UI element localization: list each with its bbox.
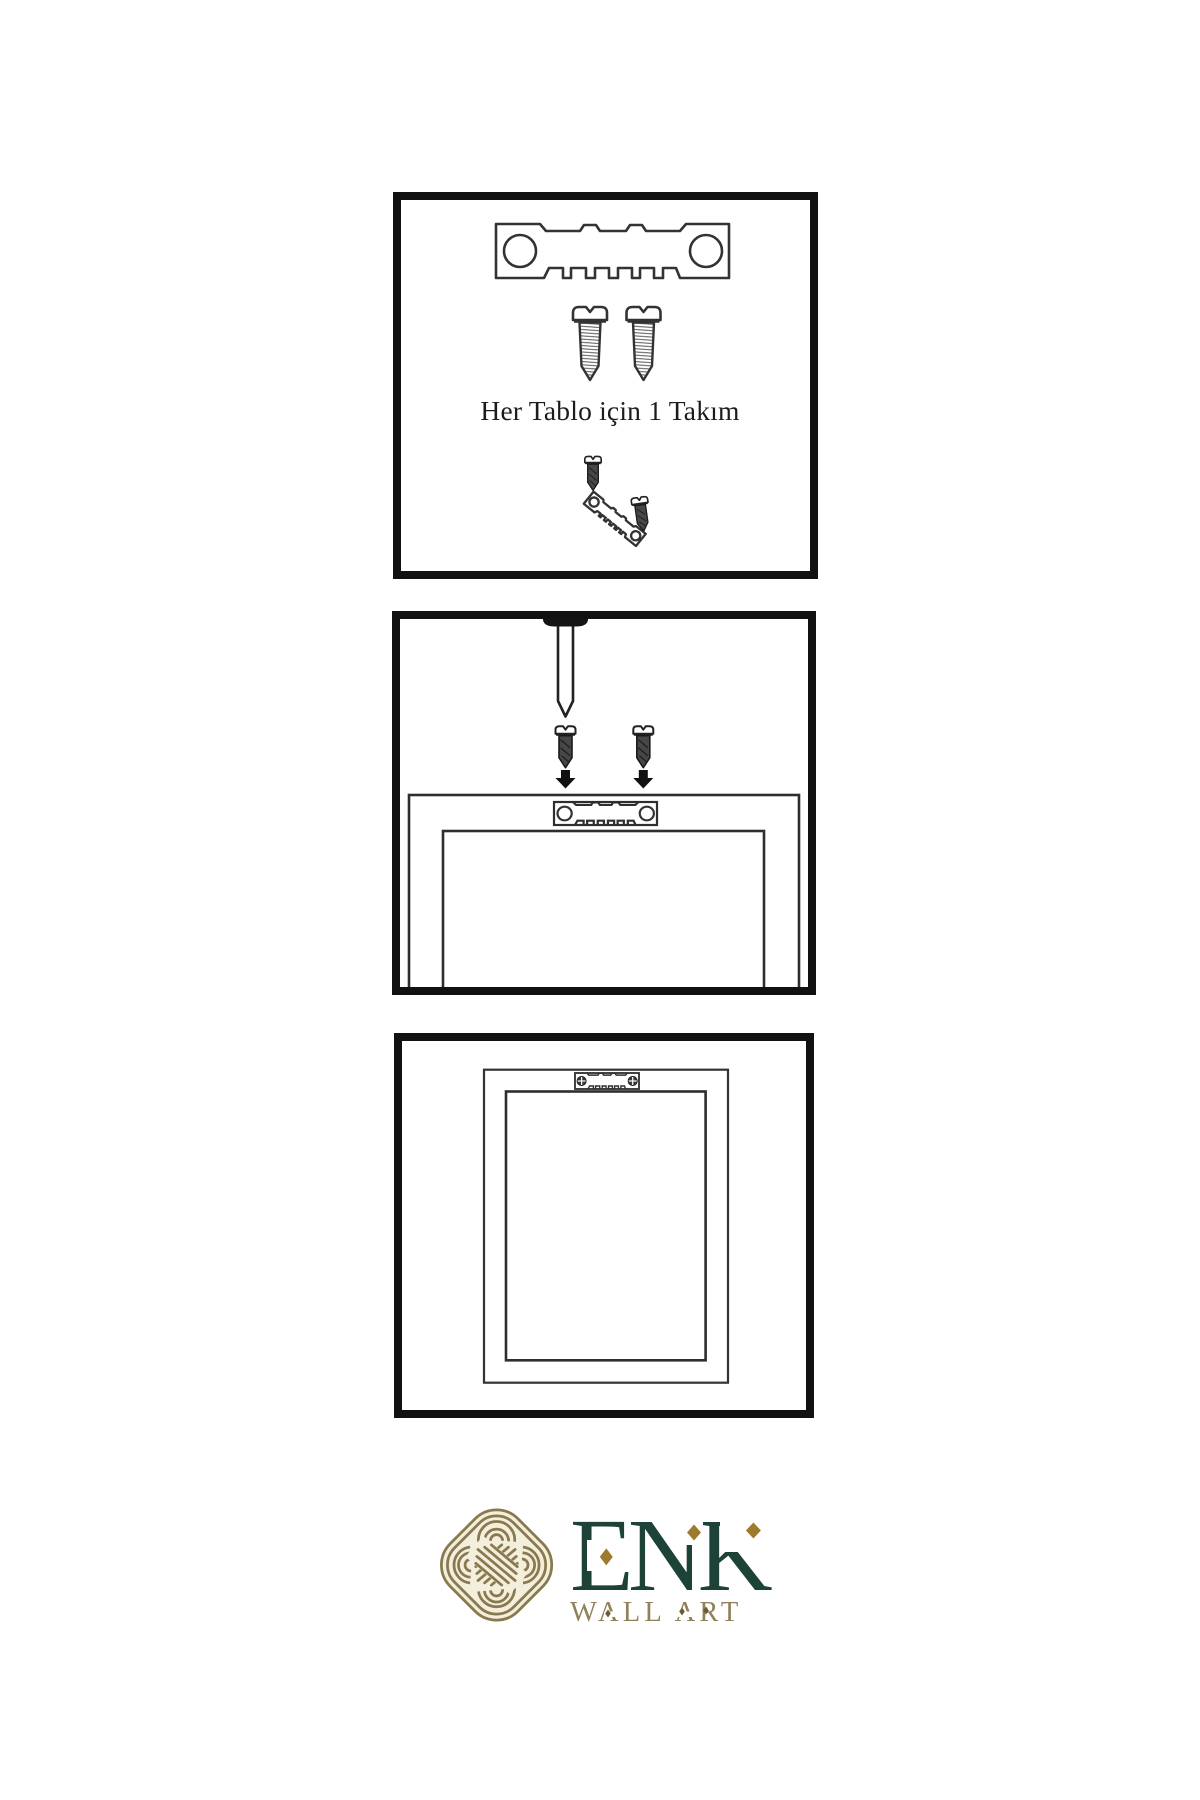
svg-text:Her Tablo için 1 Takım: Her Tablo için 1 Takım	[480, 395, 739, 426]
svg-text:WALL ART: WALL ART	[570, 1597, 743, 1628]
